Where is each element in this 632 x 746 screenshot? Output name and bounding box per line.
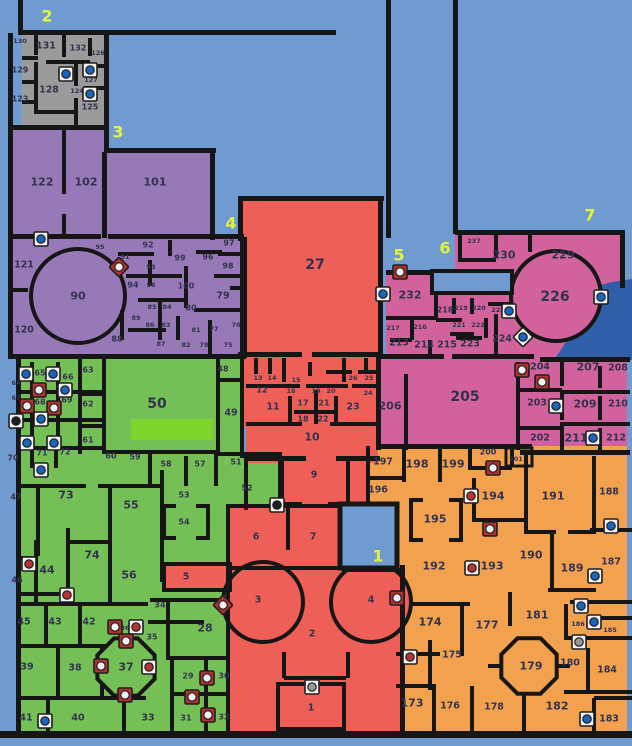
room-label-26: 26 (348, 374, 358, 382)
wall-segment (18, 484, 86, 488)
room-label-173: 173 (401, 697, 424, 710)
room-label-202: 202 (530, 433, 550, 444)
room-label-56: 56 (121, 569, 137, 582)
wall-segment (598, 396, 602, 420)
wall-segment (126, 274, 182, 278)
wall-segment (288, 396, 292, 424)
wall-segment (564, 604, 568, 638)
camera-marker (108, 620, 122, 634)
camera-marker (515, 363, 529, 377)
wall-segment (184, 456, 188, 486)
room-label-226: 226 (540, 289, 569, 305)
zone-central-red (280, 458, 366, 508)
wall-segment (246, 456, 306, 461)
room-label-22: 22 (317, 415, 328, 424)
camera-lens-icon (396, 268, 404, 276)
wall-segment (592, 456, 596, 530)
room-label-58: 58 (160, 460, 172, 469)
camera-marker (574, 599, 588, 613)
room-label-177: 177 (476, 619, 499, 632)
room-label-44: 44 (39, 564, 55, 577)
camera-lens-icon (203, 674, 211, 682)
blue-courtyard-room (340, 504, 397, 568)
camera-marker (142, 660, 156, 674)
camera-lens-icon (49, 370, 57, 378)
wall-segment (228, 562, 232, 592)
room-label-2: 2 (309, 629, 316, 640)
room-label-229: 229 (552, 249, 575, 262)
blue-courtyard-room (432, 271, 512, 293)
room-label-89: 89 (131, 314, 141, 322)
room-label-85: 85 (147, 303, 157, 311)
room-label-178: 178 (484, 702, 504, 713)
room-label-196: 196 (368, 485, 388, 496)
room-label-99: 99 (174, 254, 186, 263)
wall-segment (428, 640, 432, 690)
camera-marker (465, 561, 479, 575)
wall-segment (8, 288, 28, 292)
camera-lens-icon (575, 638, 583, 646)
room-label-50: 50 (147, 396, 167, 412)
room-label-1: 1 (308, 703, 315, 714)
camera-marker (19, 367, 33, 381)
camera-lens-icon (63, 591, 71, 599)
wall-segment (450, 332, 474, 336)
camera-marker (464, 489, 478, 503)
camera-lens-icon (538, 378, 546, 386)
room-label-73: 73 (58, 489, 73, 502)
room-label-188: 188 (599, 487, 619, 498)
camera-lens-icon (12, 417, 20, 425)
wall-segment (548, 588, 596, 592)
camera-marker (535, 375, 549, 389)
room-label-207: 207 (577, 361, 600, 374)
wall-segment (560, 362, 564, 386)
camera-marker (390, 591, 404, 605)
room-label-93: 93 (146, 263, 155, 271)
wall-segment (102, 152, 107, 238)
zone-central-red (240, 198, 380, 358)
camera-marker (393, 265, 407, 279)
camera-marker (22, 557, 36, 571)
room-label-197: 197 (373, 457, 393, 468)
room-label-184: 184 (597, 665, 617, 676)
room-label-176: 176 (440, 701, 460, 712)
room-label-3: 3 (255, 595, 262, 606)
wall-segment (214, 274, 242, 278)
zone-central-red (164, 564, 230, 592)
wall-segment (560, 422, 630, 426)
wall-segment (226, 566, 344, 570)
room-label-31: 31 (180, 714, 192, 723)
zone-number-4: 4 (225, 214, 236, 233)
room-label-79: 79 (216, 291, 229, 302)
room-label-23: 23 (346, 402, 359, 413)
room-label-97: 97 (223, 239, 234, 248)
camera-marker (604, 519, 618, 533)
camera-lens-icon (467, 492, 475, 500)
camera-marker (38, 714, 52, 728)
room-label-53: 53 (178, 491, 189, 500)
room-label-65: 65 (34, 369, 46, 378)
wall-segment (138, 298, 186, 302)
room-label-192: 192 (423, 560, 446, 573)
room-label-129: 129 (12, 66, 29, 75)
camera-marker (34, 463, 48, 477)
zone-number-7: 7 (584, 206, 595, 225)
room-label-220: 220 (472, 304, 486, 312)
wall-segment (22, 56, 38, 60)
room-label-43: 43 (48, 617, 61, 628)
wall-segment (34, 62, 38, 114)
room-label-123: 123 (12, 95, 29, 104)
room-label-46: 46 (11, 576, 23, 585)
camera-lens-icon (308, 683, 316, 691)
wall-segment (102, 358, 106, 454)
wall-segment (453, 0, 458, 234)
room-label-102: 102 (75, 176, 98, 189)
wall-segment (286, 508, 290, 550)
wall-segment (282, 358, 286, 382)
wall-segment (238, 196, 384, 201)
room-label-210: 210 (608, 399, 628, 410)
camera-marker (572, 635, 586, 649)
camera-marker (586, 431, 600, 445)
wall-segment (80, 424, 102, 428)
room-label-223: 223 (460, 339, 480, 350)
room-label-63: 63 (82, 366, 93, 375)
room-label-213: 213 (389, 338, 409, 349)
wall-segment (238, 196, 243, 241)
camera-lens-icon (22, 370, 30, 378)
room-label-183: 183 (599, 714, 619, 725)
wall-segment (18, 0, 23, 33)
camera-marker (47, 436, 61, 450)
room-label-37: 37 (118, 661, 133, 674)
room-label-182: 182 (546, 700, 569, 713)
camera-lens-icon (583, 715, 591, 723)
wall-segment (520, 450, 630, 455)
camera-marker (119, 634, 133, 648)
camera-lens-icon (406, 653, 414, 661)
wall-segment (80, 392, 102, 396)
wall-segment (276, 682, 280, 730)
camera-lens-icon (607, 522, 615, 530)
camera-marker (588, 569, 602, 583)
room-label-212: 212 (606, 433, 626, 444)
wall-segment (586, 648, 590, 690)
wall-segment (594, 696, 632, 700)
wall-segment (364, 358, 368, 370)
zone-number-3: 3 (112, 123, 123, 142)
room-label-51: 51 (230, 458, 242, 467)
wall-segment (282, 652, 286, 678)
room-label-84: 84 (162, 303, 172, 311)
wall-segment (13, 234, 101, 239)
room-label-96: 96 (202, 253, 214, 262)
wall-segment (18, 602, 148, 606)
room-label-6: 6 (253, 532, 260, 543)
camera-marker (185, 690, 199, 704)
room-label-27: 27 (305, 257, 324, 273)
camera-marker (502, 304, 516, 318)
wall-segment (468, 444, 472, 468)
wall-segment (166, 656, 230, 660)
room-label-62: 62 (82, 400, 93, 409)
wall-segment (216, 378, 242, 382)
room-label-175: 175 (442, 650, 462, 661)
room-label-30: 30 (218, 672, 230, 681)
wall-segment (18, 592, 66, 596)
room-label-191: 191 (542, 490, 565, 503)
camera-lens-icon (35, 386, 43, 394)
camera-marker (486, 461, 500, 475)
camera-lens-icon (505, 307, 513, 315)
room-label-92: 92 (142, 241, 153, 250)
camera-lens-icon (86, 90, 94, 98)
floor-plan-map: 1301311321261291281271241231251221021011… (0, 0, 632, 746)
wall-segment (560, 390, 630, 394)
camera-lens-icon (379, 290, 387, 298)
room-label-94: 94 (127, 281, 139, 290)
room-label-179: 179 (520, 660, 543, 673)
wall-segment (214, 454, 218, 486)
room-label-221: 221 (452, 321, 466, 329)
wall-segment (346, 460, 350, 506)
room-label-122: 122 (31, 176, 54, 189)
room-label-199: 199 (442, 458, 465, 471)
room-label-200: 200 (480, 448, 497, 457)
wall-segment (620, 232, 625, 288)
room-label-19: 19 (311, 387, 321, 395)
room-label-95: 95 (95, 243, 105, 251)
room-label-24: 24 (363, 389, 373, 397)
camera-lens-icon (273, 501, 281, 509)
camera-lens-icon (86, 66, 94, 74)
room-label-124: 124 (70, 87, 84, 95)
room-label-40: 40 (71, 713, 85, 724)
room-label-78: 78 (199, 341, 209, 349)
wall-segment (168, 240, 172, 256)
wall-segment (108, 488, 112, 602)
wall-segment (246, 422, 302, 426)
room-label-98: 98 (222, 262, 234, 271)
camera-lens-icon (41, 717, 49, 725)
room-label-13: 13 (253, 374, 262, 382)
camera-marker (9, 414, 23, 428)
room-label-59: 59 (129, 453, 141, 462)
camera-marker (83, 87, 97, 101)
wall-segment (342, 358, 346, 382)
wall-segment (470, 686, 474, 732)
camera-lens-icon (132, 623, 140, 631)
room-label-203: 203 (527, 398, 547, 409)
wall-segment (386, 0, 391, 238)
wall-segment (18, 30, 336, 35)
camera-lens-icon (597, 293, 605, 301)
room-label-206: 206 (379, 400, 402, 413)
floor-plan-viewport: 1301311321261291281271241231251221021011… (0, 0, 632, 746)
wall-segment (8, 125, 108, 130)
room-label-186: 186 (571, 620, 585, 628)
camera-lens-icon (468, 564, 476, 572)
wall-segment (378, 354, 444, 359)
wall-segment (238, 352, 302, 357)
camera-lens-icon (590, 618, 598, 626)
zone-number-1: 1 (372, 547, 383, 566)
wall-segment (378, 196, 383, 356)
room-label-193: 193 (481, 560, 504, 573)
camera-lens-icon (111, 623, 119, 631)
wall-segment (432, 688, 436, 732)
room-label-20: 20 (326, 387, 336, 395)
camera-marker (483, 522, 497, 536)
camera-marker (59, 67, 73, 81)
wall-segment (352, 384, 380, 388)
room-label-18: 18 (297, 415, 309, 424)
room-label-131: 131 (36, 41, 56, 52)
room-label-61: 61 (82, 436, 94, 445)
room-label-237: 237 (467, 237, 481, 245)
room-label-11: 11 (266, 402, 279, 413)
room-label-54: 54 (178, 518, 190, 527)
room-label-87: 87 (156, 340, 165, 348)
room-label-48: 48 (217, 365, 229, 374)
room-label-21: 21 (318, 399, 330, 408)
wall-segment (18, 418, 102, 422)
wall-segment (386, 316, 436, 320)
room-label-29: 29 (182, 672, 194, 681)
wall-segment (98, 484, 160, 488)
wall-segment (410, 602, 470, 606)
room-label-190: 190 (520, 549, 543, 562)
wall-segment (22, 80, 36, 84)
room-label-88: 88 (111, 335, 123, 344)
room-label-126: 126 (91, 49, 105, 57)
wall-segment (162, 588, 232, 592)
room-label-83: 83 (161, 321, 170, 329)
camera-marker (200, 671, 214, 685)
zone-central-red (226, 506, 344, 568)
wall-segment (54, 450, 58, 468)
camera-marker (305, 680, 319, 694)
wall-segment (600, 616, 632, 620)
room-label-4: 4 (368, 595, 375, 606)
room-label-81: 81 (191, 326, 201, 334)
room-label-38: 38 (68, 663, 82, 674)
room-label-33: 33 (141, 713, 154, 724)
camera-marker (34, 412, 48, 426)
wall-segment (254, 358, 258, 374)
camera-lens-icon (518, 366, 526, 374)
room-label-218: 218 (437, 306, 454, 315)
camera-marker (47, 401, 61, 415)
highlighted-area (131, 419, 213, 440)
wall-segment (0, 731, 632, 738)
room-label-205: 205 (450, 389, 479, 405)
camera-lens-icon (486, 525, 494, 533)
camera-lens-icon (37, 235, 45, 243)
room-label-15: 15 (291, 376, 301, 384)
wall-segment (268, 358, 272, 374)
camera-marker (118, 688, 132, 702)
room-label-194: 194 (482, 490, 505, 503)
wall-segment (216, 452, 282, 456)
wall-segment (226, 506, 230, 568)
wall-segment (148, 452, 152, 486)
wall-segment (242, 237, 247, 358)
room-label-34: 34 (154, 601, 166, 610)
camera-lens-icon (188, 693, 196, 701)
room-label-215: 215 (437, 340, 457, 351)
room-label-74: 74 (84, 549, 100, 562)
room-label-70: 70 (7, 454, 19, 463)
room-label-66: 66 (62, 373, 74, 382)
wall-segment (330, 422, 380, 426)
camera-marker (376, 287, 390, 301)
room-label-49: 49 (224, 408, 237, 419)
camera-marker (32, 383, 46, 397)
room-label-181: 181 (526, 609, 549, 622)
wall-segment (194, 308, 242, 312)
room-label-100: 100 (178, 282, 195, 291)
wall-segment (346, 652, 350, 678)
wall-segment (56, 648, 60, 698)
wall-segment (294, 410, 338, 414)
room-label-224: 224 (492, 334, 512, 345)
room-label-90: 90 (70, 290, 86, 303)
wall-segment (452, 354, 534, 359)
room-label-211: 211 (565, 432, 588, 445)
room-label-121: 121 (14, 260, 34, 271)
room-label-5: 5 (183, 572, 190, 583)
camera-lens-icon (97, 662, 105, 670)
room-label-76: 76 (231, 321, 241, 329)
wall-segment (230, 286, 244, 290)
room-label-128: 128 (39, 85, 59, 96)
room-label-125: 125 (82, 103, 99, 112)
wall-segment (520, 426, 562, 430)
wall-segment (528, 234, 532, 252)
room-label-101: 101 (144, 176, 167, 189)
camera-marker (94, 659, 108, 673)
wall-segment (218, 252, 242, 256)
room-label-174: 174 (419, 616, 442, 629)
camera-lens-icon (489, 464, 497, 472)
room-label-57: 57 (194, 460, 205, 469)
room-label-77: 77 (209, 325, 218, 333)
room-label-32: 32 (218, 713, 229, 722)
room-label-187: 187 (601, 557, 621, 568)
room-label-201: 201 (509, 455, 523, 463)
room-label-130: 130 (13, 37, 27, 45)
wall-segment (66, 540, 110, 544)
wall-segment (162, 562, 232, 566)
zone-number-6: 6 (439, 239, 450, 258)
camera-marker (60, 588, 74, 602)
room-label-52: 52 (241, 484, 252, 493)
camera-marker (270, 498, 284, 512)
room-label-230: 230 (493, 249, 516, 262)
wall-segment (308, 362, 312, 376)
room-label-28: 28 (197, 622, 212, 635)
room-label-25: 25 (364, 374, 374, 382)
room-label-216: 216 (413, 323, 427, 331)
camera-lens-icon (25, 560, 33, 568)
room-label-16: 16 (286, 387, 296, 395)
room-label-195: 195 (424, 513, 447, 526)
wall-segment (166, 600, 170, 658)
